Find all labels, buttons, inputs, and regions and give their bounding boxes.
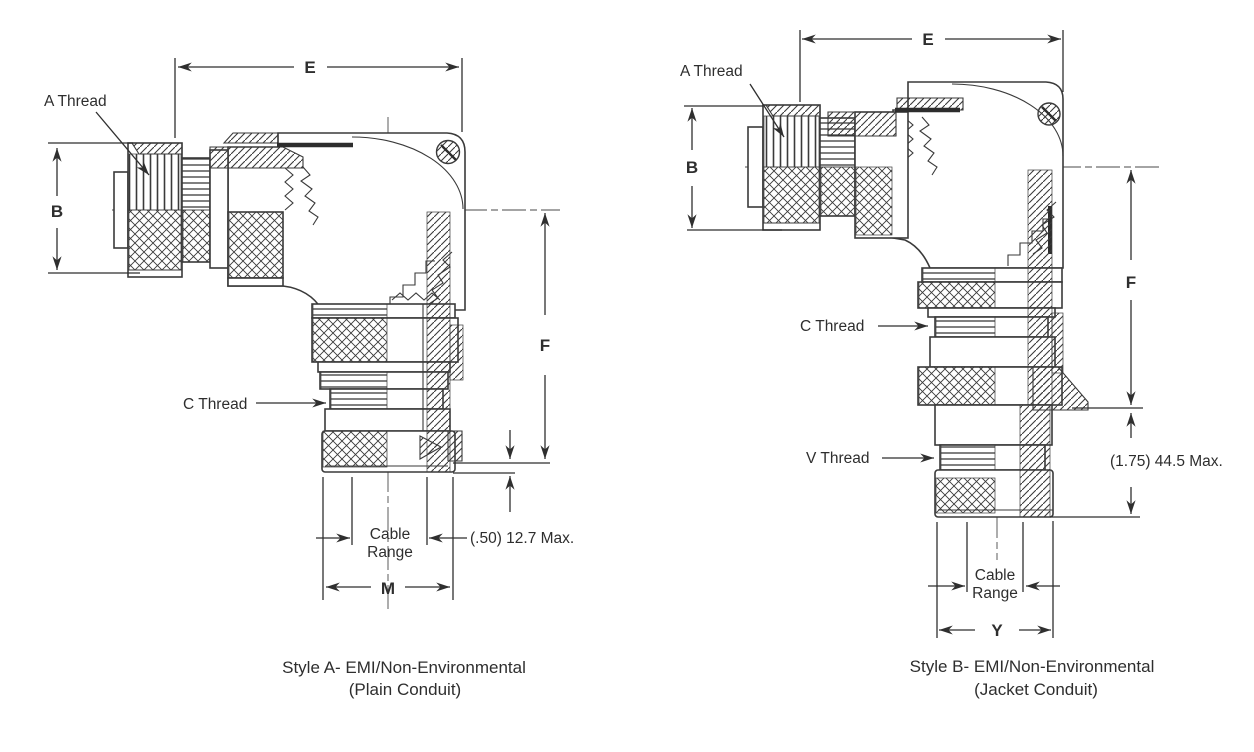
- svg-text:Range: Range: [972, 585, 1018, 602]
- dim-m-label-a: M: [381, 579, 395, 598]
- screw-icon: [437, 141, 460, 164]
- max-note-b: (1.75) 44.5 Max.: [1110, 453, 1223, 470]
- dim-f-label-a: F: [540, 336, 550, 355]
- screw-icon: [1038, 103, 1060, 125]
- c-thread-label-a: C Thread: [183, 396, 247, 413]
- dim-b-label-b: B: [686, 158, 698, 177]
- cable-range-label-a: Cable: [370, 526, 411, 543]
- clamp-cap-b: [828, 112, 896, 136]
- cable-range-label-b: Cable: [975, 567, 1016, 584]
- svg-text:(Jacket Conduit): (Jacket Conduit): [974, 680, 1098, 699]
- clamp-cap-a: [210, 147, 303, 168]
- a-thread-label-a: A Thread: [44, 93, 107, 110]
- dim-y-label-b: Y: [991, 621, 1003, 640]
- dim-e-label-b: E: [922, 30, 933, 49]
- connector-diagram-svg: E B F M A Thread C Thread Cable Range (.…: [0, 0, 1254, 752]
- svg-text:(Plain Conduit): (Plain Conduit): [349, 680, 461, 699]
- caption-style-a: Style A- EMI/Non-Environmental: [282, 658, 526, 677]
- max-note-a: (.50) 12.7 Max.: [470, 530, 574, 547]
- dim-e-label-a: E: [304, 58, 315, 77]
- caption-style-b: Style B- EMI/Non-Environmental: [910, 657, 1155, 676]
- svg-text:Range: Range: [367, 544, 413, 561]
- v-thread-label-b: V Thread: [806, 450, 869, 467]
- c-thread-label-b: C Thread: [800, 318, 864, 335]
- dim-f-label-b: F: [1126, 273, 1136, 292]
- technical-drawing-page: E B F M A Thread C Thread Cable Range (.…: [0, 0, 1254, 752]
- a-thread-label-b: A Thread: [680, 63, 743, 80]
- figure-style-b: E B F Y A Thread C Thread V Thread Cable…: [680, 30, 1223, 699]
- dim-b-label-a: B: [51, 202, 63, 221]
- figure-style-a: E B F M A Thread C Thread Cable Range (.…: [44, 58, 574, 699]
- section-hatch-a: [427, 212, 450, 472]
- flange-b: [1033, 367, 1088, 410]
